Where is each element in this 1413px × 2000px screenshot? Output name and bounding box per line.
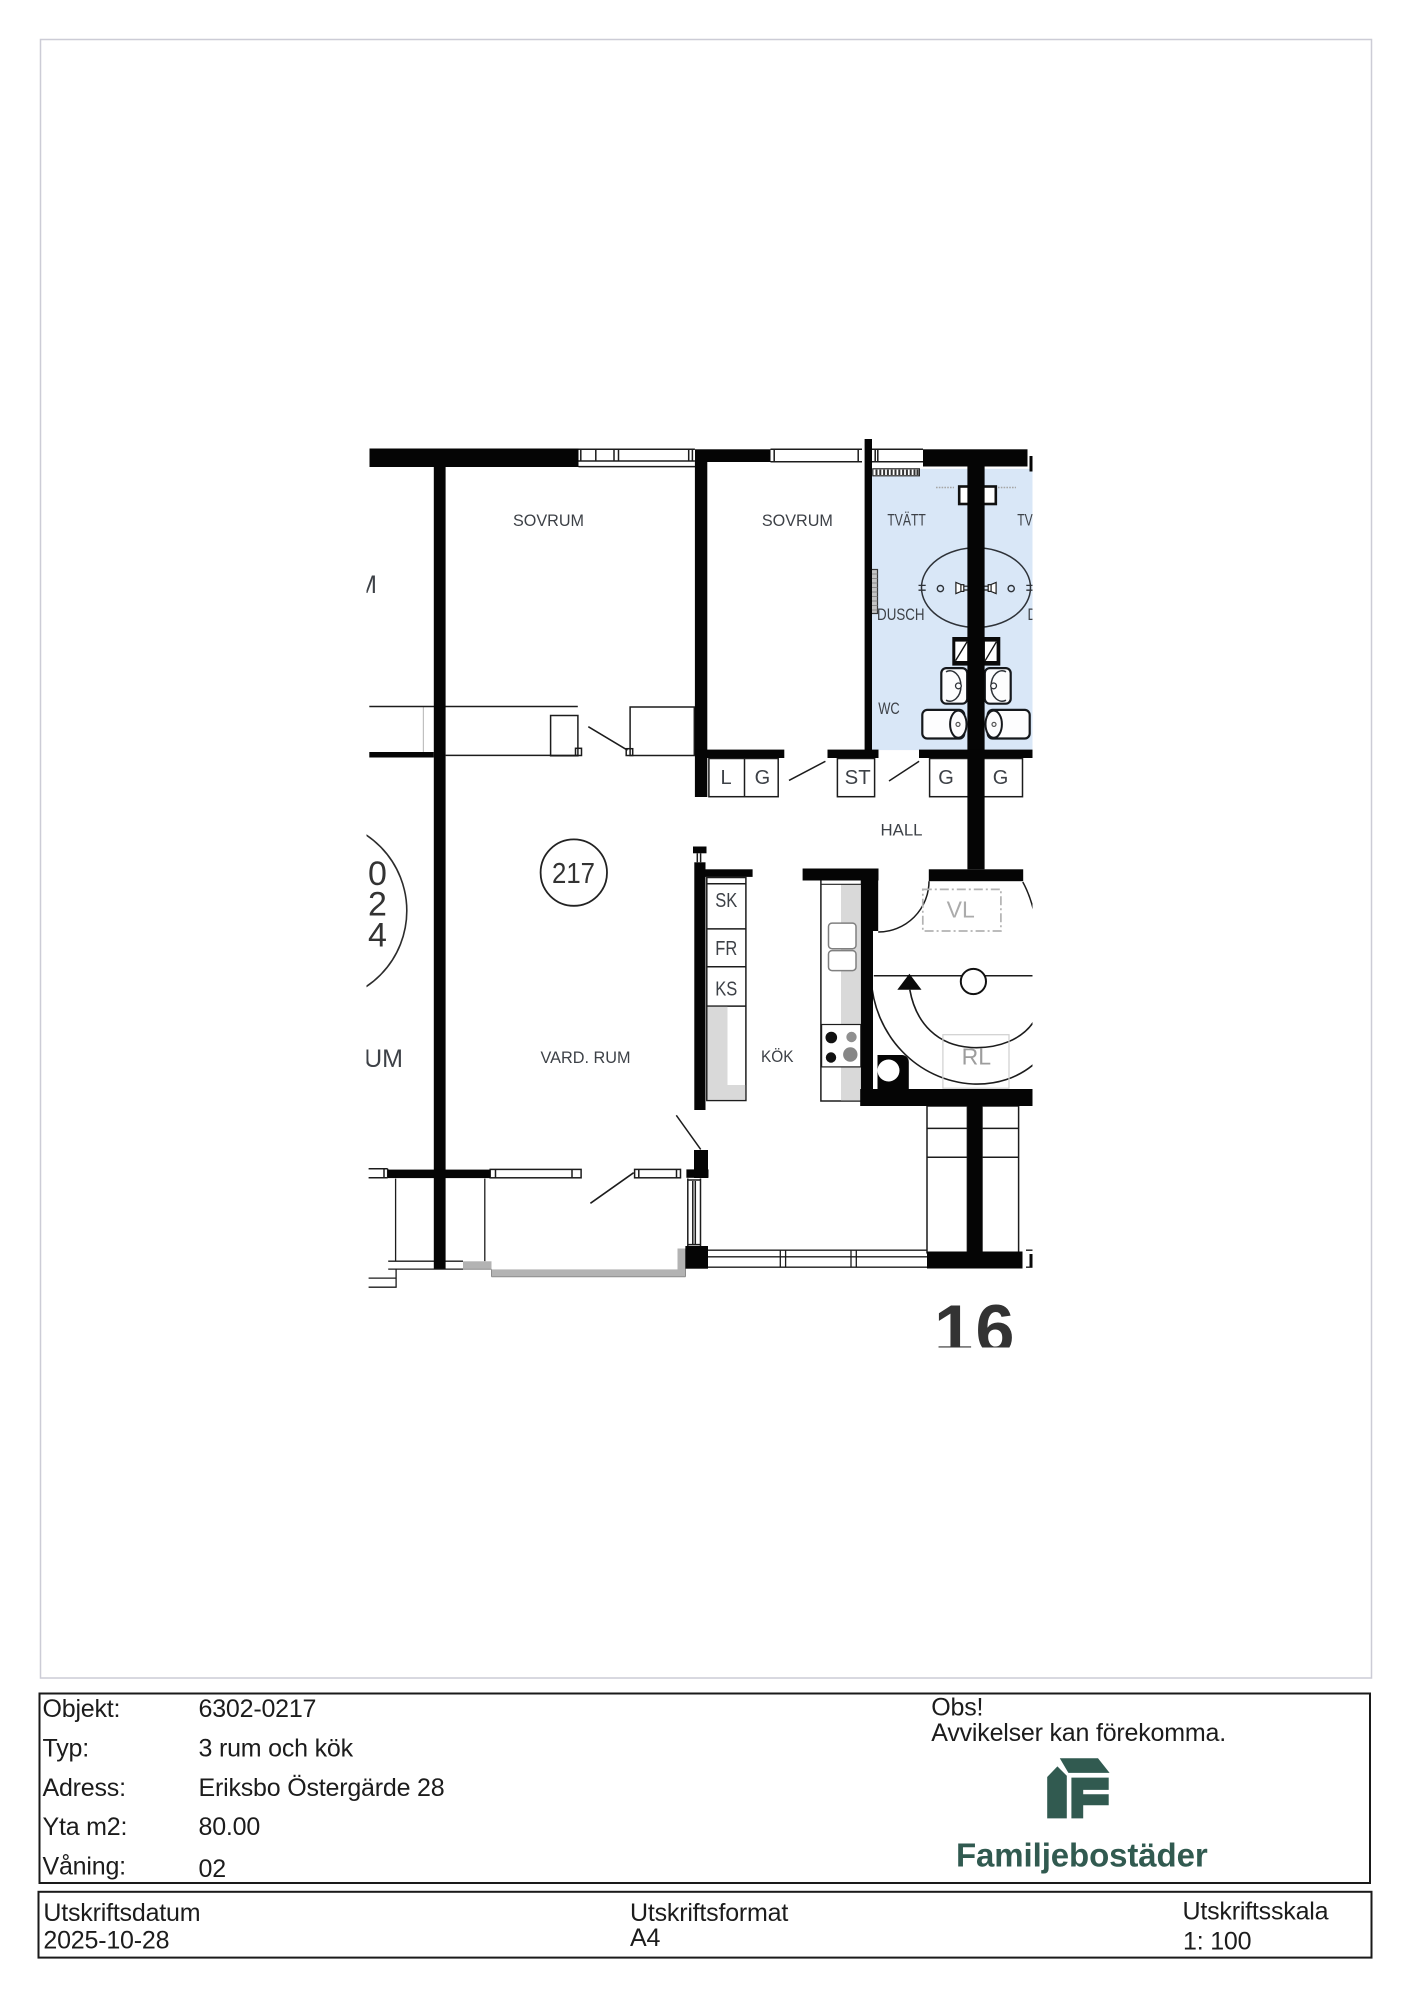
svg-text:UM: UM [364,1045,403,1073]
svg-text:Eriksbo Östergärde 28: Eriksbo Östergärde 28 [199,1774,445,1802]
svg-text:VL: VL [947,897,975,923]
svg-text:G: G [993,767,1009,789]
svg-text:G: G [938,767,954,789]
svg-text:SK: SK [715,890,738,912]
svg-text:2025-10-28: 2025-10-28 [43,1927,169,1955]
svg-text:Objekt:: Objekt: [43,1695,121,1723]
svg-text:TVÄTT: TVÄTT [887,511,926,530]
svg-text:SOVRUM: SOVRUM [513,511,584,530]
svg-text:Obs!: Obs! [931,1694,983,1722]
svg-text:Familjebostäder: Familjebostäder [956,1837,1208,1874]
svg-text:G: G [755,767,771,789]
svg-text:Utskriftsformat: Utskriftsformat [630,1899,788,1927]
svg-text:6302-0217: 6302-0217 [199,1695,317,1723]
svg-text:02: 02 [199,1855,226,1883]
svg-text:KÖK: KÖK [761,1047,794,1066]
svg-text:HALL: HALL [881,821,923,840]
svg-text:3 rum och kök: 3 rum och kök [199,1734,354,1762]
svg-text:Typ:: Typ: [43,1734,89,1762]
svg-text:1: 100: 1: 100 [1183,1928,1251,1956]
svg-text:Utskriftsskala: Utskriftsskala [1183,1898,1329,1926]
svg-text:Våning:: Våning: [43,1853,126,1881]
svg-text:L: L [720,767,731,789]
svg-text:Utskriftsdatum: Utskriftsdatum [43,1899,200,1927]
svg-text:Avvikelser kan förekomma.: Avvikelser kan förekomma. [931,1719,1226,1747]
svg-text:VARD. RUM: VARD. RUM [541,1048,631,1067]
svg-text:DUSCH: DUSCH [877,605,925,624]
svg-text:WC: WC [878,699,900,718]
svg-text:RL: RL [962,1043,992,1069]
svg-text:ST: ST [845,767,871,789]
svg-text:SOVRUM: SOVRUM [762,511,833,530]
svg-text:FR: FR [715,938,737,960]
svg-text:Yta m2:: Yta m2: [43,1813,128,1841]
svg-text:217: 217 [552,858,595,890]
svg-text:Adress:: Adress: [43,1774,126,1802]
svg-text:KS: KS [715,979,737,1001]
svg-text:80.00: 80.00 [199,1813,261,1841]
svg-text:4: 4 [368,917,387,955]
svg-text:A4: A4 [630,1924,660,1952]
